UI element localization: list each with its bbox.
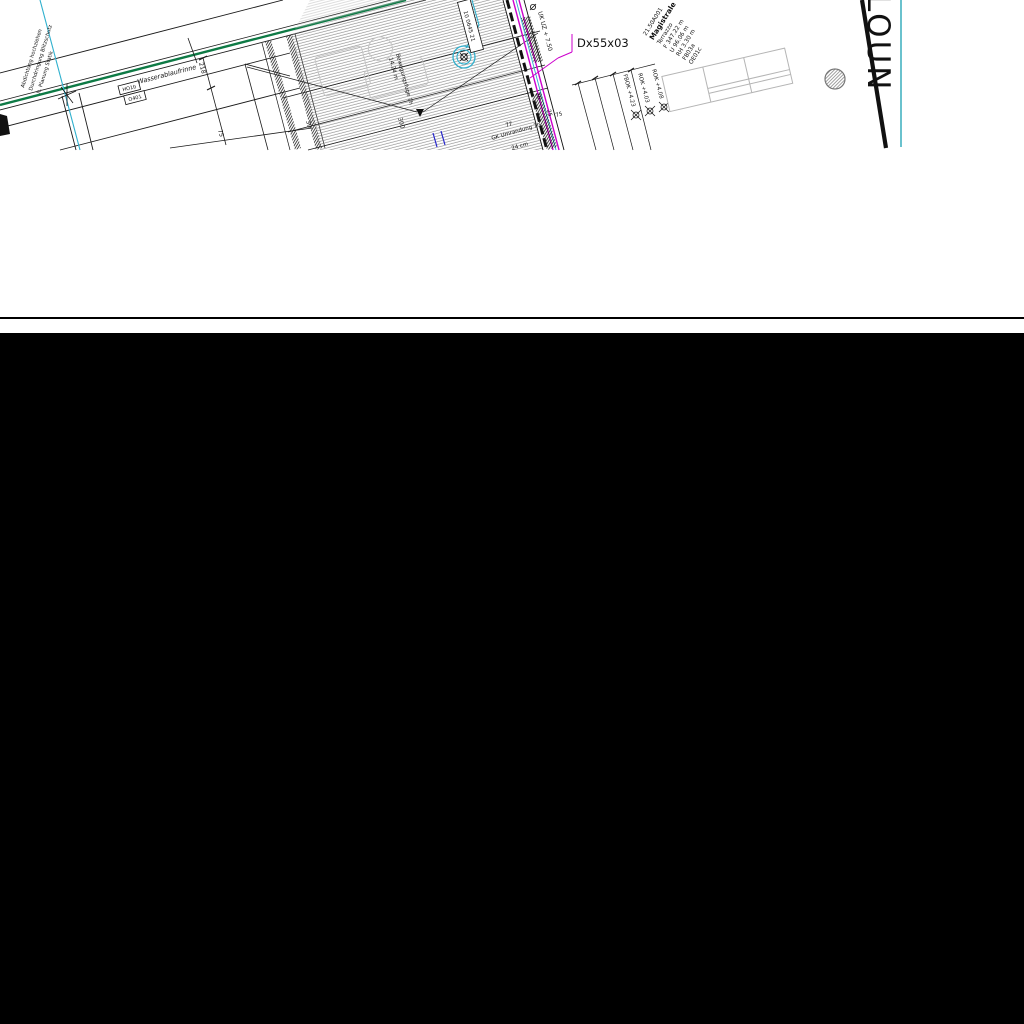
room-stamp: 21.50A001 Magistrale Terrazzo F 347.22 m…: [642, 0, 716, 67]
sheet-edge-line: [0, 317, 1024, 319]
green-note: Abdichtung hochziehen Durchdringung Blit…: [20, 24, 55, 95]
canvas-void-area[interactable]: [0, 333, 1024, 1024]
drawing-canvas[interactable]: Abdichtung hochziehen Durchdringung Blit…: [0, 0, 1024, 158]
level-label-1: FBOK +4.23: [621, 74, 636, 108]
cad-viewer-page: Abdichtung hochziehen Durchdringung Blit…: [0, 0, 1024, 1024]
dim-75-right: 75: [555, 111, 564, 119]
dim-218: 218: [197, 62, 207, 75]
axis-intersection-star: [58, 84, 76, 106]
duct-tag-label: Dx55x03: [577, 36, 629, 50]
level-symbols: [631, 102, 669, 120]
column-circle: [825, 69, 845, 89]
level-label-3: ROK +4.08: [650, 69, 664, 100]
plan-svg: Abdichtung hochziehen Durchdringung Blit…: [0, 0, 1024, 158]
wall-end-mark: [0, 114, 10, 136]
